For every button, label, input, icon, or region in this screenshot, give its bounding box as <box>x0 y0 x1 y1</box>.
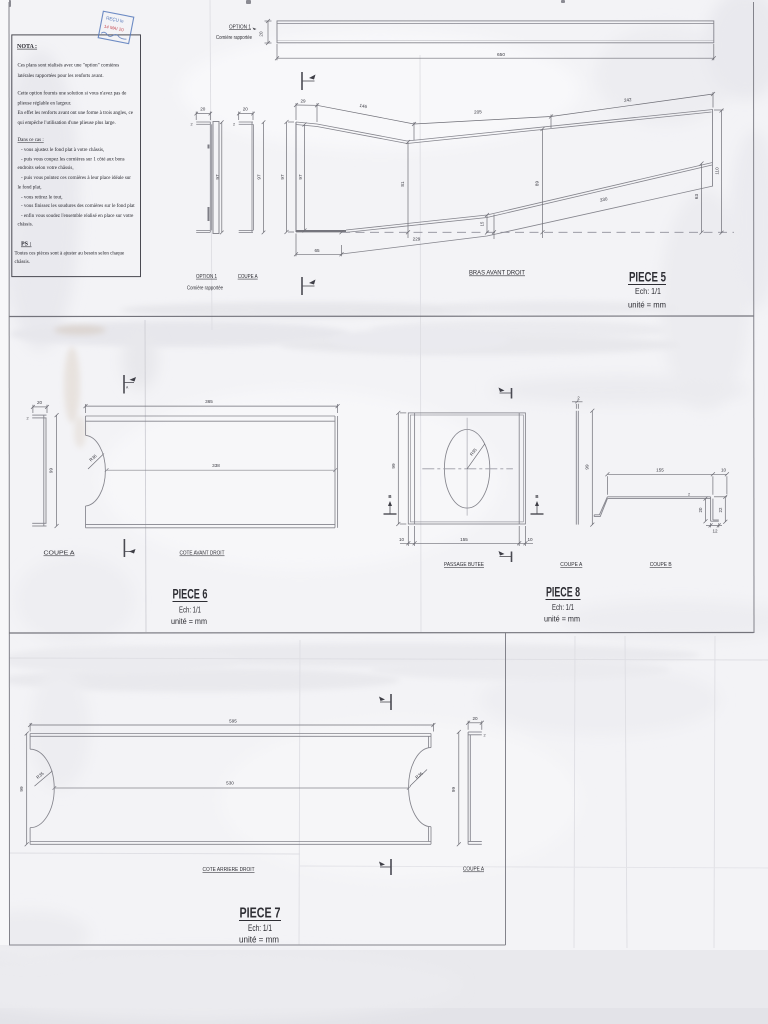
svg-text:OPTION 1: OPTION 1 <box>229 24 251 30</box>
svg-text:81: 81 <box>400 181 405 187</box>
svg-text:BRAS AVANT DROIT: BRAS AVANT DROIT <box>469 271 525 277</box>
svg-text:650: 650 <box>497 52 505 58</box>
svg-text:29: 29 <box>300 99 306 104</box>
svg-text:Cornière rapportée: Cornière rapportée <box>216 35 252 41</box>
svg-text:COUPE A: COUPE A <box>463 867 484 873</box>
svg-text:- enfin vous soudez l'ensemble: - enfin vous soudez l'ensemble réalisé e… <box>21 214 134 219</box>
svg-text:99: 99 <box>451 787 456 793</box>
svg-text:PIECE 5: PIECE 5 <box>629 269 666 285</box>
svg-text:110: 110 <box>715 167 720 175</box>
svg-text:unité = mm: unité = mm <box>171 616 207 626</box>
svg-text:20: 20 <box>259 31 264 37</box>
svg-text:97: 97 <box>298 174 303 180</box>
svg-text:2: 2 <box>27 417 29 421</box>
svg-text:229: 229 <box>413 237 421 242</box>
svg-text:plieuse réglable en largeur.: plieuse réglable en largeur. <box>18 102 72 107</box>
svg-text:unité = mm: unité = mm <box>628 300 666 310</box>
svg-text:- vous finissez les soudures d: - vous finissez les soudures des cornièr… <box>21 204 135 209</box>
svg-text:2: 2 <box>484 734 486 738</box>
svg-text:qui empêche l'utilisation d'un: qui empêche l'utilisation d'une plieuse … <box>18 121 116 126</box>
svg-text:99: 99 <box>584 464 589 470</box>
svg-text:B: B <box>535 494 538 499</box>
svg-text:PS :: PS : <box>21 242 32 248</box>
svg-text:2: 2 <box>233 123 235 127</box>
svg-text:12: 12 <box>712 528 718 533</box>
svg-text:unité = mm: unité = mm <box>544 614 580 624</box>
svg-text:2: 2 <box>688 492 690 496</box>
svg-text:99: 99 <box>49 468 54 474</box>
svg-text:97: 97 <box>280 174 285 180</box>
svg-text:- puis vous coupez les cornièr: - puis vous coupez les cornières sur 1 c… <box>21 158 125 163</box>
svg-text:PIECE 7: PIECE 7 <box>240 906 281 922</box>
svg-text:155: 155 <box>460 537 468 542</box>
svg-text:PASSAGE BUTEE: PASSAGE BUTEE <box>444 562 484 568</box>
svg-text:89: 89 <box>535 181 540 187</box>
svg-text:En effet les renforts avant on: En effet les renforts avant ont une form… <box>18 111 134 116</box>
svg-text:15: 15 <box>480 221 485 226</box>
svg-text:COTE ARRIERE DROIT: COTE ARRIERE DROIT <box>203 867 255 873</box>
svg-text:châssis.: châssis. <box>15 260 30 265</box>
svg-text:99: 99 <box>19 786 24 792</box>
svg-text:205: 205 <box>474 109 482 114</box>
svg-text:NOTA :: NOTA : <box>17 44 37 50</box>
svg-text:Cornière rapportée: Cornière rapportée <box>187 285 223 291</box>
svg-text:10: 10 <box>721 467 727 472</box>
svg-text:20: 20 <box>472 716 478 721</box>
svg-text:COUPE B: COUPE B <box>650 562 672 568</box>
svg-text:unité = mm: unité = mm <box>239 935 279 945</box>
svg-text:- puis vous pointez ces corniè: - puis vous pointez ces cornières à leur… <box>21 176 131 181</box>
svg-text:PIECE 6: PIECE 6 <box>173 587 208 602</box>
svg-text:- vous ajustez le fond plat à: - vous ajustez le fond plat à votre châs… <box>21 148 104 153</box>
svg-text:20: 20 <box>243 107 249 112</box>
svg-text:155: 155 <box>656 467 664 472</box>
svg-text:63: 63 <box>694 194 699 200</box>
svg-text:- vous retirez le tout,: - vous retirez le tout, <box>21 196 63 201</box>
svg-text:595: 595 <box>229 718 237 723</box>
svg-text:65: 65 <box>314 248 320 253</box>
svg-text:Cette option fournis une solut: Cette option fournis une solution si vou… <box>18 92 128 97</box>
svg-text:530: 530 <box>226 781 234 786</box>
svg-text:Toutes ces pièces sont à ajust: Toutes ces pièces sont à ajuster au beso… <box>15 251 126 256</box>
svg-text:châssis.: châssis. <box>18 222 33 227</box>
svg-text:Ces plans sont réalisés avec u: Ces plans sont réalisés avec une "option… <box>18 64 120 69</box>
svg-text:COUPE A: COUPE A <box>238 274 258 280</box>
svg-text:20: 20 <box>200 107 206 112</box>
svg-text:OPTION 1: OPTION 1 <box>196 274 217 280</box>
svg-text:22: 22 <box>718 507 723 512</box>
svg-text:97: 97 <box>215 174 220 180</box>
svg-text:latérales rapportées pour les: latérales rapportées pour les renforts a… <box>18 74 104 79</box>
svg-text:endroits selon votre châssis,: endroits selon votre châssis, <box>18 166 74 171</box>
svg-text:B: B <box>388 494 391 499</box>
svg-text:PIECE 8: PIECE 8 <box>546 585 580 600</box>
svg-text:99: 99 <box>391 463 396 469</box>
svg-text:Dans ce cas :: Dans ce cas : <box>18 138 44 143</box>
svg-text:Ech: 1/1: Ech: 1/1 <box>635 286 661 296</box>
svg-text:COTE AVANT DROIT: COTE AVANT DROIT <box>180 551 225 557</box>
svg-text:20: 20 <box>698 507 703 512</box>
svg-text:le fond plat,: le fond plat, <box>18 186 42 191</box>
svg-text:10: 10 <box>399 537 405 542</box>
svg-text:2: 2 <box>191 123 193 127</box>
svg-text:20: 20 <box>37 400 43 405</box>
svg-text:10: 10 <box>527 537 533 542</box>
svg-text:97: 97 <box>257 174 262 180</box>
svg-text:COUPE A: COUPE A <box>44 551 75 557</box>
svg-text:COUPE A: COUPE A <box>560 562 582 568</box>
svg-text:Ech: 1/1: Ech: 1/1 <box>552 602 574 612</box>
svg-text:Ech: 1/1: Ech: 1/1 <box>248 923 272 933</box>
svg-text:365: 365 <box>205 399 213 404</box>
svg-text:Ech: 1/1: Ech: 1/1 <box>179 605 201 615</box>
svg-text:338: 338 <box>212 463 220 468</box>
